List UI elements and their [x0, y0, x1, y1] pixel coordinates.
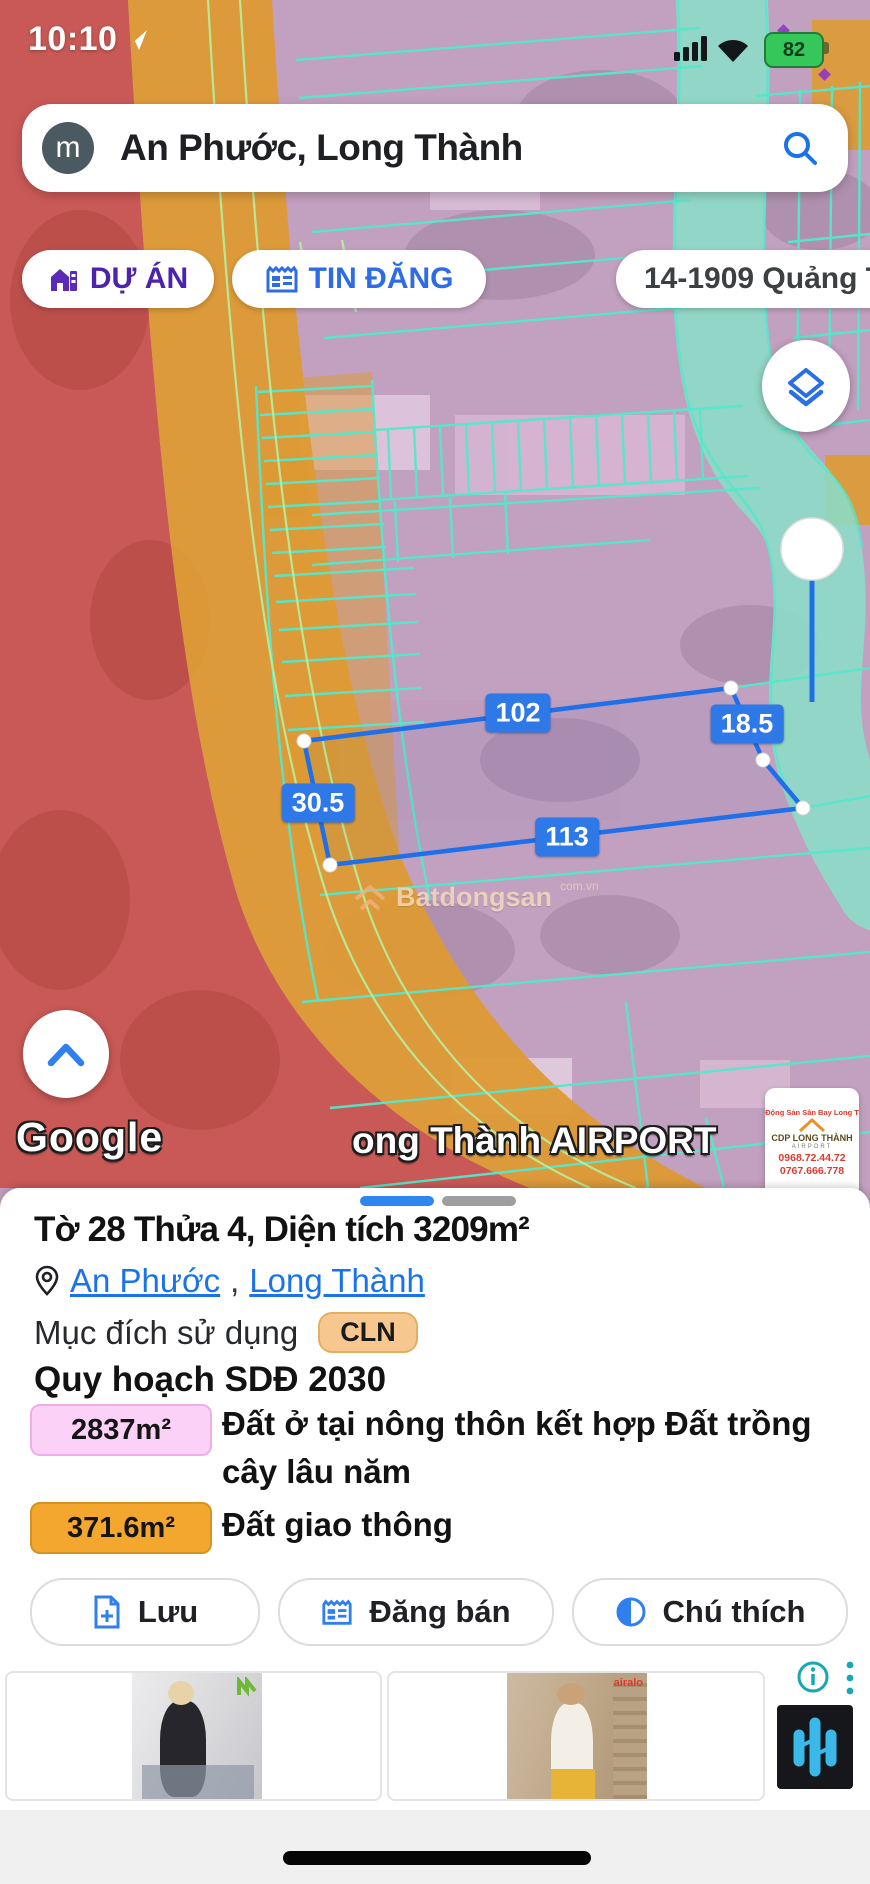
map-ad-card[interactable]: Động Sản Sân Bay Long T CDP LONG THÀNH A… — [765, 1088, 859, 1198]
chip-tin-dang-label: TIN ĐĂNG — [309, 262, 454, 296]
map-layers-button[interactable] — [762, 340, 850, 432]
location-arrow-icon — [125, 28, 149, 52]
expand-sheet-button[interactable] — [23, 1010, 109, 1098]
google-logo: Google — [16, 1114, 163, 1161]
ad-brand-icon-green — [236, 1677, 258, 1699]
chevron-up-icon — [45, 1039, 87, 1069]
chip-tin-dang[interactable]: TIN ĐĂNG — [232, 250, 486, 308]
post-sale-button-label: Đăng bán — [369, 1594, 510, 1630]
post-listing-icon — [321, 1596, 353, 1628]
save-button-label: Lưu — [138, 1594, 198, 1630]
ad-card-phone-1: 0968.72.44.72 — [778, 1152, 845, 1165]
edge-length-label-left: 30.5 — [282, 784, 355, 823]
contrast-circle-icon — [615, 1596, 647, 1628]
legend-area-badge-residential: 2837m² — [30, 1404, 212, 1456]
chip-listing-label: 14-1909 Quảng Tiến — [644, 262, 870, 296]
chip-du-an[interactable]: DỰ ÁN — [22, 250, 214, 308]
legend-toggle-button[interactable]: Chú thích — [572, 1578, 848, 1646]
legend-label-traffic: Đất giao thông — [222, 1502, 870, 1548]
search-icon[interactable] — [780, 128, 820, 168]
location-link-ward[interactable]: An Phước — [70, 1262, 220, 1300]
ad-app-icon[interactable] — [777, 1705, 853, 1789]
land-use-code-badge: CLN — [318, 1312, 418, 1353]
legend-label-residential: Đất ở tại nông thôn kết hợp Đất trồng câ… — [222, 1400, 870, 1496]
ad-tile-1[interactable] — [5, 1671, 382, 1801]
battery-nub — [824, 42, 829, 54]
parcel-title: Tờ 28 Thửa 4, Diện tích 3209m² — [34, 1210, 529, 1250]
signal-strength-icon — [674, 36, 707, 61]
battery-icon: 82 — [764, 32, 824, 68]
ad-photo-2: airalo — [507, 1673, 647, 1799]
ad-info-icon[interactable] — [796, 1660, 830, 1694]
listing-news-icon — [265, 263, 299, 295]
edge-length-label-top: 102 — [485, 694, 550, 733]
ad-tile-2[interactable]: airalo — [387, 1671, 765, 1801]
ad-menu-dots-icon[interactable] — [844, 1660, 856, 1698]
map-marker-circle[interactable] — [781, 518, 843, 580]
watermark-text: Batdongsan — [396, 882, 552, 913]
ad-card-tagline: Động Sản Sân Bay Long T — [765, 1108, 859, 1117]
airport-map-label: ong Thành AIRPORT — [352, 1120, 716, 1162]
edge-length-label-bottom: 113 — [535, 818, 599, 857]
sheet-pager-inactive[interactable] — [442, 1196, 516, 1206]
watermark: Batdongsan com.vn — [352, 882, 599, 913]
project-building-icon — [48, 263, 80, 295]
ad-card-sub: AIRPORT — [792, 1144, 833, 1152]
land-use-row: Mục đích sử dụng CLN — [34, 1312, 418, 1353]
location-link-district[interactable]: Long Thành — [249, 1262, 425, 1300]
bottom-safe-area — [0, 1810, 870, 1884]
search-bar[interactable]: m An Phước, Long Thành — [22, 104, 848, 192]
watermark-suffix: com.vn — [560, 879, 599, 893]
legend-area-badge-traffic: 371.6m² — [30, 1502, 212, 1554]
app-screen: 102 18.5 30.5 113 Batdongsan com.vn Goog… — [0, 0, 870, 1884]
molecule-icon — [777, 1705, 853, 1789]
planning-heading: Quy hoạch SDĐ 2030 — [34, 1360, 386, 1400]
layers-icon — [782, 362, 830, 410]
wifi-icon — [712, 34, 754, 64]
location-separator: , — [230, 1262, 239, 1300]
post-sale-button[interactable]: Đăng bán — [278, 1578, 554, 1646]
ad-photo-1 — [132, 1673, 262, 1799]
ad-card-roof-icon — [797, 1117, 827, 1133]
watermark-house-icon — [352, 883, 388, 913]
land-use-label: Mục đích sử dụng — [34, 1314, 298, 1352]
parcel-info-sheet[interactable]: Tờ 28 Thửa 4, Diện tích 3209m² An Phước,… — [0, 1188, 870, 1884]
chip-du-an-label: DỰ ÁN — [90, 262, 188, 296]
ad-card-phone-2: 0767.666.778 — [780, 1165, 844, 1178]
legend-toggle-button-label: Chú thích — [663, 1594, 806, 1630]
home-indicator[interactable] — [283, 1851, 591, 1865]
chip-listing[interactable]: 14-1909 Quảng Tiến — [616, 250, 870, 308]
location-pin-icon — [34, 1265, 60, 1297]
ad-brand-label: airalo — [614, 1677, 643, 1689]
sheet-pager-active[interactable] — [360, 1196, 434, 1206]
ad-card-brand: CDP LONG THÀNH — [771, 1133, 852, 1144]
save-button[interactable]: Lưu — [30, 1578, 260, 1646]
edge-length-label-right: 18.5 — [711, 705, 784, 744]
status-bar-time: 10:10 — [28, 20, 149, 59]
save-doc-plus-icon — [92, 1595, 122, 1629]
parcel-location-row: An Phước, Long Thành — [34, 1262, 425, 1300]
search-input[interactable]: An Phước, Long Thành — [120, 127, 780, 169]
account-avatar[interactable]: m — [42, 122, 94, 174]
